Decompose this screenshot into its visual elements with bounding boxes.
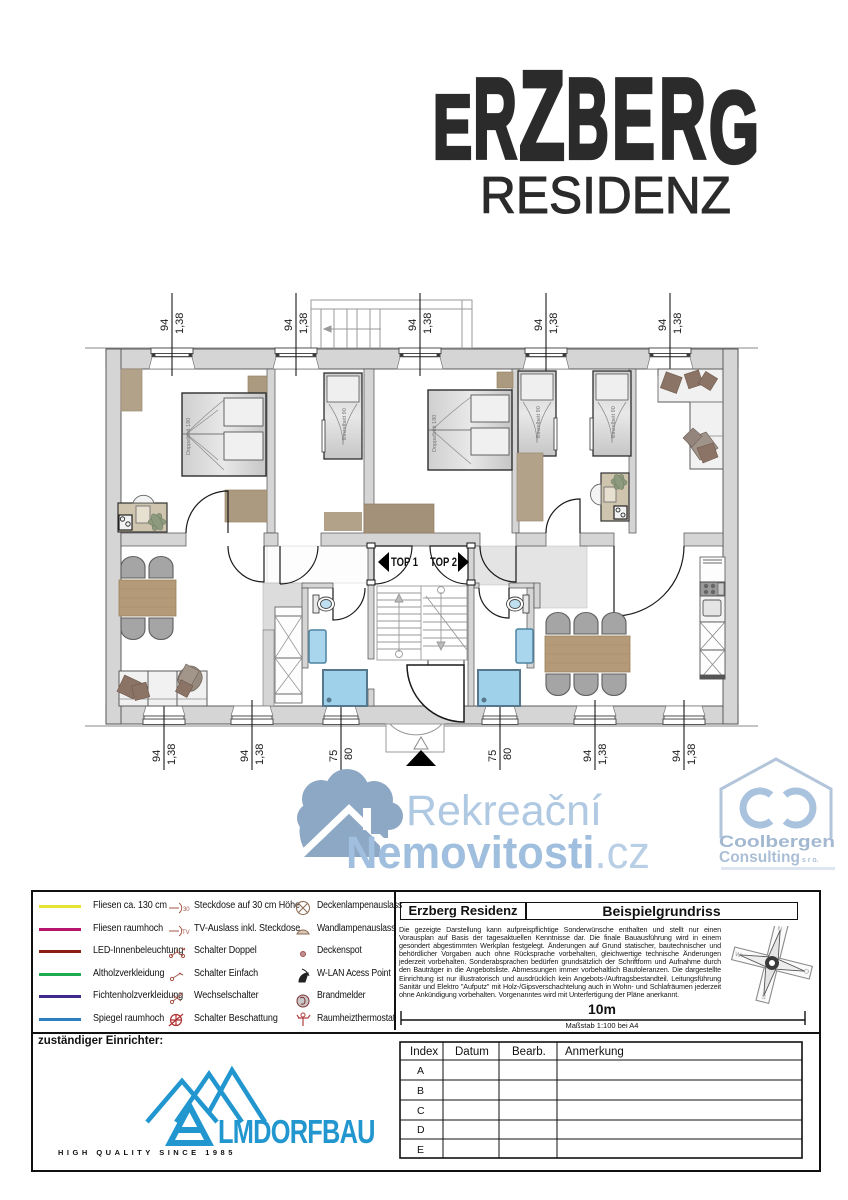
svg-text:C: C [417,1105,425,1117]
svg-text:1,38: 1,38 [174,313,186,334]
svg-text:TV: TV [182,930,190,936]
svg-text:Doppelbett 180: Doppelbett 180 [186,418,192,455]
svg-text:Bearb.: Bearb. [512,1046,546,1058]
svg-text:Nemovitosti.cz: Nemovitosti.cz [346,827,650,878]
svg-text:B: B [417,1085,424,1097]
svg-text:Consulting s r o.: Consulting s r o. [719,849,819,866]
svg-text:TOP 2: TOP 2 [430,557,457,569]
svg-text:80: 80 [343,748,355,760]
svg-text:Index: Index [410,1046,438,1058]
svg-text:TOP 1: TOP 1 [391,557,418,569]
svg-text:Einzelbett 90: Einzelbett 90 [342,408,348,440]
svg-text:Anmerkung: Anmerkung [565,1046,624,1058]
svg-text:A: A [417,1065,424,1077]
svg-text:D: D [417,1124,425,1136]
svg-text:94: 94 [151,750,163,762]
svg-text:30: 30 [183,907,190,913]
svg-text:LMDORFBAU: LMDORFBAU [218,1114,375,1151]
svg-text:Einzelbett 90: Einzelbett 90 [536,406,542,438]
svg-text:Datum: Datum [455,1046,489,1058]
svg-text:E: E [417,1144,424,1156]
svg-text:75: 75 [328,750,340,762]
svg-text:Doppelbett 180: Doppelbett 180 [432,415,438,452]
svg-text:HIGH QUALITY SINCE 1985: HIGH QUALITY SINCE 1985 [58,1148,236,1157]
svg-text:Einzelbett 90: Einzelbett 90 [611,406,617,438]
svg-text:1,38: 1,38 [166,744,178,765]
svg-text:94: 94 [159,319,171,331]
